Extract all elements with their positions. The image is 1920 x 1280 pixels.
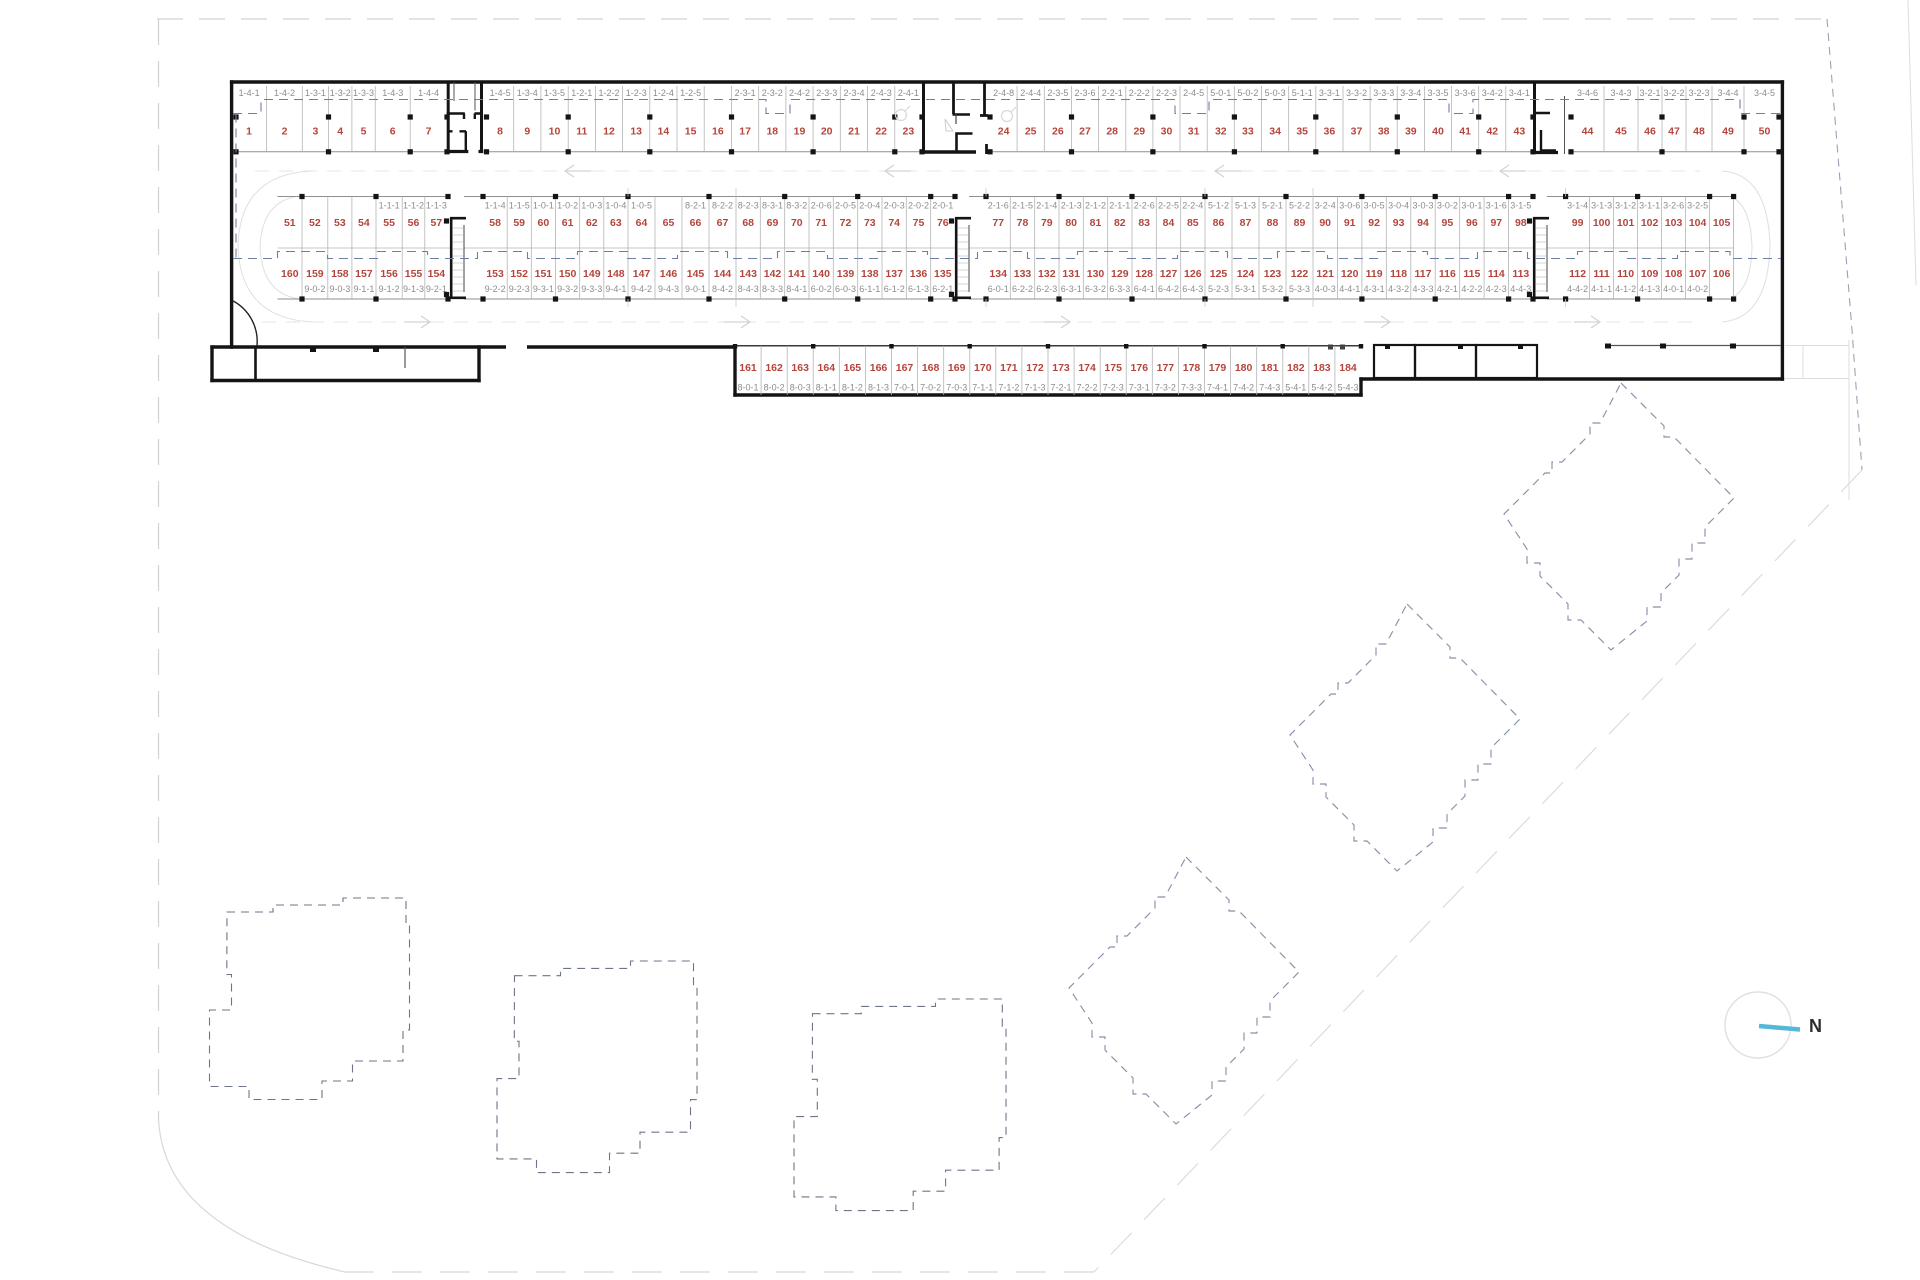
svg-text:2-1-2: 2-1-2 (1085, 201, 1106, 211)
svg-text:7-2-1: 7-2-1 (1050, 383, 1071, 393)
svg-text:2-3-6: 2-3-6 (1074, 88, 1095, 98)
svg-text:3-2-2: 3-2-2 (1663, 88, 1684, 98)
svg-text:70: 70 (791, 217, 803, 229)
svg-text:173: 173 (1052, 362, 1070, 374)
svg-text:4-2-1: 4-2-1 (1437, 284, 1458, 294)
svg-text:143: 143 (739, 268, 757, 280)
svg-text:5-0-3: 5-0-3 (1265, 88, 1286, 98)
svg-text:128: 128 (1135, 268, 1153, 280)
svg-text:139: 139 (837, 268, 855, 280)
svg-text:5-0-1: 5-0-1 (1210, 88, 1231, 98)
svg-text:116: 116 (1439, 268, 1456, 280)
svg-text:2-0-2: 2-0-2 (908, 201, 929, 211)
svg-text:109: 109 (1641, 268, 1659, 280)
svg-text:47: 47 (1668, 126, 1680, 138)
svg-text:5-1-2: 5-1-2 (1208, 201, 1229, 211)
svg-text:162: 162 (765, 362, 783, 374)
svg-text:3-1-6: 3-1-6 (1486, 201, 1507, 211)
svg-text:6-1-1: 6-1-1 (859, 284, 880, 294)
svg-text:42: 42 (1486, 126, 1498, 138)
svg-text:2-1-3: 2-1-3 (1061, 201, 1082, 211)
svg-text:57: 57 (431, 217, 443, 229)
svg-text:174: 174 (1078, 362, 1096, 374)
svg-text:9-2-1: 9-2-1 (426, 284, 447, 294)
svg-text:1-1-1: 1-1-1 (379, 201, 400, 211)
svg-text:3-1-2: 3-1-2 (1615, 201, 1636, 211)
svg-text:156: 156 (380, 268, 398, 280)
svg-text:144: 144 (714, 268, 732, 280)
svg-text:122: 122 (1291, 268, 1309, 280)
svg-text:99: 99 (1572, 217, 1584, 229)
svg-text:58: 58 (489, 217, 501, 229)
svg-text:177: 177 (1157, 362, 1175, 374)
svg-text:8-3-3: 8-3-3 (762, 284, 783, 294)
svg-text:3-2-4: 3-2-4 (1315, 201, 1336, 211)
svg-text:28: 28 (1106, 126, 1118, 138)
svg-text:2-3-4: 2-3-4 (843, 88, 864, 98)
svg-text:66: 66 (690, 217, 702, 229)
svg-text:103: 103 (1665, 217, 1683, 229)
svg-text:172: 172 (1026, 362, 1044, 374)
svg-text:184: 184 (1339, 362, 1357, 374)
svg-text:33: 33 (1242, 126, 1254, 138)
svg-text:3-3-3: 3-3-3 (1373, 88, 1394, 98)
svg-text:2-2-1: 2-2-1 (1102, 88, 1123, 98)
svg-text:2-2-5: 2-2-5 (1158, 201, 1179, 211)
svg-text:9-1-2: 9-1-2 (379, 284, 400, 294)
svg-text:8-2-1: 8-2-1 (685, 201, 706, 211)
svg-text:72: 72 (840, 217, 852, 229)
svg-text:2-2-2: 2-2-2 (1129, 88, 1150, 98)
svg-text:48: 48 (1693, 126, 1705, 138)
svg-text:1-0-5: 1-0-5 (631, 201, 652, 211)
svg-text:10: 10 (549, 126, 561, 138)
svg-text:1-4-4: 1-4-4 (418, 88, 439, 98)
svg-text:14: 14 (658, 126, 670, 138)
svg-text:159: 159 (306, 268, 324, 280)
svg-text:86: 86 (1213, 217, 1225, 229)
svg-text:51: 51 (284, 217, 296, 229)
svg-text:4-2-3: 4-2-3 (1486, 284, 1507, 294)
svg-text:157: 157 (355, 268, 373, 280)
svg-text:39: 39 (1405, 126, 1417, 138)
svg-text:1-2-1: 1-2-1 (571, 88, 592, 98)
svg-text:2-4-1: 2-4-1 (898, 88, 919, 98)
svg-text:3-2-3: 3-2-3 (1688, 88, 1709, 98)
svg-text:119: 119 (1366, 268, 1383, 280)
svg-text:6-4-1: 6-4-1 (1134, 284, 1155, 294)
svg-text:45: 45 (1615, 126, 1627, 138)
svg-text:125: 125 (1210, 268, 1228, 280)
svg-text:7: 7 (426, 126, 432, 138)
svg-text:160: 160 (281, 268, 299, 280)
svg-text:147: 147 (633, 268, 651, 280)
svg-text:7-0-3: 7-0-3 (946, 383, 967, 393)
svg-text:91: 91 (1344, 217, 1356, 229)
svg-text:75: 75 (913, 217, 925, 229)
svg-text:108: 108 (1665, 268, 1683, 280)
svg-text:106: 106 (1713, 268, 1731, 280)
svg-text:124: 124 (1237, 268, 1255, 280)
svg-text:27: 27 (1079, 126, 1091, 138)
svg-text:3-1-1: 3-1-1 (1639, 201, 1660, 211)
svg-text:113: 113 (1512, 268, 1529, 280)
svg-text:126: 126 (1184, 268, 1202, 280)
svg-text:32: 32 (1215, 126, 1227, 138)
svg-text:4: 4 (337, 126, 343, 138)
svg-text:56: 56 (408, 217, 420, 229)
svg-text:166: 166 (870, 362, 888, 374)
svg-text:9-4-1: 9-4-1 (605, 284, 626, 294)
svg-text:23: 23 (903, 126, 915, 138)
svg-text:21: 21 (848, 126, 860, 138)
svg-text:140: 140 (812, 268, 830, 280)
svg-text:4-1-3: 4-1-3 (1639, 284, 1660, 294)
svg-text:5-2-3: 5-2-3 (1208, 284, 1229, 294)
svg-text:8-4-3: 8-4-3 (738, 284, 759, 294)
svg-text:9-3-3: 9-3-3 (581, 284, 602, 294)
svg-text:111: 111 (1593, 268, 1610, 280)
svg-text:148: 148 (607, 268, 625, 280)
svg-text:17: 17 (739, 126, 751, 138)
svg-text:4-3-2: 4-3-2 (1388, 284, 1409, 294)
svg-text:2-1-4: 2-1-4 (1036, 201, 1057, 211)
svg-text:102: 102 (1641, 217, 1659, 229)
svg-text:3-4-2: 3-4-2 (1482, 88, 1503, 98)
svg-text:2: 2 (282, 126, 288, 138)
svg-text:1-1-5: 1-1-5 (509, 201, 530, 211)
svg-text:69: 69 (767, 217, 779, 229)
svg-text:79: 79 (1041, 217, 1053, 229)
svg-text:3-0-3: 3-0-3 (1412, 201, 1433, 211)
svg-text:19: 19 (794, 126, 806, 138)
svg-text:3-1-5: 3-1-5 (1510, 201, 1531, 211)
svg-text:2-0-6: 2-0-6 (811, 201, 832, 211)
svg-text:6: 6 (390, 126, 396, 138)
svg-text:N: N (1809, 1016, 1822, 1036)
svg-text:2-0-4: 2-0-4 (859, 201, 880, 211)
svg-text:141: 141 (788, 268, 806, 280)
svg-text:53: 53 (334, 217, 346, 229)
svg-text:170: 170 (974, 362, 992, 374)
svg-text:8-0-2: 8-0-2 (764, 383, 785, 393)
svg-text:149: 149 (583, 268, 601, 280)
svg-text:6-3-2: 6-3-2 (1085, 284, 1106, 294)
svg-text:114: 114 (1488, 268, 1505, 280)
svg-text:6-3-3: 6-3-3 (1109, 284, 1130, 294)
svg-text:89: 89 (1294, 217, 1306, 229)
svg-text:4-0-3: 4-0-3 (1315, 284, 1336, 294)
svg-text:4-3-3: 4-3-3 (1412, 284, 1433, 294)
svg-text:2-0-3: 2-0-3 (884, 201, 905, 211)
svg-text:3-4-4: 3-4-4 (1717, 88, 1738, 98)
svg-text:130: 130 (1087, 268, 1105, 280)
svg-text:3-3-1: 3-3-1 (1319, 88, 1340, 98)
svg-text:40: 40 (1432, 126, 1444, 138)
svg-text:7-2-3: 7-2-3 (1103, 383, 1124, 393)
svg-text:2-3-3: 2-3-3 (816, 88, 837, 98)
svg-text:3-3-4: 3-3-4 (1400, 88, 1421, 98)
svg-text:2-4-5: 2-4-5 (1183, 88, 1204, 98)
svg-text:1: 1 (246, 126, 252, 138)
svg-text:88: 88 (1267, 217, 1279, 229)
svg-text:142: 142 (764, 268, 782, 280)
svg-text:71: 71 (815, 217, 827, 229)
svg-text:6-4-3: 6-4-3 (1182, 284, 1203, 294)
svg-text:8-3-2: 8-3-2 (786, 201, 807, 211)
svg-text:67: 67 (717, 217, 729, 229)
svg-text:7-1-3: 7-1-3 (1024, 383, 1045, 393)
svg-text:7-1-2: 7-1-2 (998, 383, 1019, 393)
svg-text:9-4-3: 9-4-3 (658, 284, 679, 294)
svg-text:183: 183 (1313, 362, 1331, 374)
svg-text:3-3-6: 3-3-6 (1455, 88, 1476, 98)
svg-text:4-1-1: 4-1-1 (1591, 284, 1612, 294)
svg-text:5-3-2: 5-3-2 (1262, 284, 1283, 294)
svg-text:136: 136 (910, 268, 928, 280)
svg-text:1-2-5: 1-2-5 (680, 88, 701, 98)
svg-text:100: 100 (1593, 217, 1611, 229)
svg-text:85: 85 (1187, 217, 1199, 229)
svg-text:4-1-2: 4-1-2 (1615, 284, 1636, 294)
svg-text:171: 171 (1000, 362, 1018, 374)
svg-text:7-0-2: 7-0-2 (920, 383, 941, 393)
svg-text:107: 107 (1689, 268, 1707, 280)
svg-text:8-1-3: 8-1-3 (868, 383, 889, 393)
svg-text:161: 161 (739, 362, 757, 374)
svg-text:1-3-2: 1-3-2 (330, 88, 351, 98)
svg-text:5: 5 (361, 126, 367, 138)
svg-text:8-0-3: 8-0-3 (790, 383, 811, 393)
svg-text:8-2-3: 8-2-3 (738, 201, 759, 211)
svg-text:175: 175 (1104, 362, 1122, 374)
svg-text:9-2-3: 9-2-3 (509, 284, 530, 294)
svg-text:8-1-1: 8-1-1 (816, 383, 837, 393)
svg-text:6-2-3: 6-2-3 (1036, 284, 1057, 294)
svg-text:1-0-2: 1-0-2 (557, 201, 578, 211)
svg-text:137: 137 (885, 268, 903, 280)
svg-text:36: 36 (1324, 126, 1336, 138)
svg-text:29: 29 (1133, 126, 1145, 138)
svg-text:9-1-3: 9-1-3 (403, 284, 424, 294)
svg-text:87: 87 (1240, 217, 1252, 229)
svg-text:155: 155 (405, 268, 423, 280)
svg-text:3: 3 (312, 126, 318, 138)
svg-text:9-3-1: 9-3-1 (533, 284, 554, 294)
svg-text:1-0-3: 1-0-3 (581, 201, 602, 211)
svg-text:1-4-3: 1-4-3 (382, 88, 403, 98)
svg-text:1-2-2: 1-2-2 (598, 88, 619, 98)
svg-text:5-1-3: 5-1-3 (1235, 201, 1256, 211)
svg-text:9-1-1: 9-1-1 (353, 284, 374, 294)
svg-text:1-3-1: 1-3-1 (305, 88, 326, 98)
svg-text:68: 68 (742, 217, 754, 229)
svg-text:150: 150 (559, 268, 577, 280)
svg-text:95: 95 (1442, 217, 1454, 229)
svg-text:3-4-1: 3-4-1 (1509, 88, 1530, 98)
svg-text:9-0-3: 9-0-3 (329, 284, 350, 294)
svg-text:4-0-2: 4-0-2 (1687, 284, 1708, 294)
svg-text:135: 135 (934, 268, 952, 280)
svg-text:127: 127 (1160, 268, 1178, 280)
svg-text:145: 145 (687, 268, 705, 280)
svg-text:81: 81 (1090, 217, 1102, 229)
svg-text:2-2-4: 2-2-4 (1182, 201, 1203, 211)
svg-text:120: 120 (1341, 268, 1359, 280)
svg-text:13: 13 (630, 126, 642, 138)
svg-text:11: 11 (576, 126, 587, 138)
svg-text:15: 15 (685, 126, 697, 138)
svg-text:5-4-1: 5-4-1 (1285, 383, 1306, 393)
svg-text:5-0-2: 5-0-2 (1237, 88, 1258, 98)
svg-text:90: 90 (1319, 217, 1331, 229)
svg-text:1-0-4: 1-0-4 (605, 201, 626, 211)
svg-text:179: 179 (1209, 362, 1227, 374)
svg-text:9-3-2: 9-3-2 (557, 284, 578, 294)
svg-text:176: 176 (1131, 362, 1149, 374)
svg-text:37: 37 (1351, 126, 1363, 138)
svg-text:7-4-3: 7-4-3 (1259, 383, 1280, 393)
svg-text:6-0-1: 6-0-1 (988, 284, 1009, 294)
svg-text:61: 61 (562, 217, 574, 229)
svg-text:112: 112 (1569, 268, 1586, 280)
svg-text:2-4-3: 2-4-3 (871, 88, 892, 98)
svg-text:2-0-1: 2-0-1 (932, 201, 953, 211)
svg-text:178: 178 (1183, 362, 1201, 374)
svg-text:5-2-2: 5-2-2 (1289, 201, 1310, 211)
svg-text:7-0-1: 7-0-1 (894, 383, 915, 393)
svg-text:4-3-1: 4-3-1 (1364, 284, 1385, 294)
svg-text:5-4-3: 5-4-3 (1337, 383, 1358, 393)
svg-text:169: 169 (948, 362, 966, 374)
svg-text:3-3-5: 3-3-5 (1427, 88, 1448, 98)
svg-text:8-2-2: 8-2-2 (712, 201, 733, 211)
svg-text:52: 52 (309, 217, 321, 229)
svg-text:76: 76 (937, 217, 949, 229)
svg-text:134: 134 (989, 268, 1007, 280)
svg-text:104: 104 (1689, 217, 1707, 229)
svg-text:6-3-1: 6-3-1 (1061, 284, 1082, 294)
svg-text:1-2-3: 1-2-3 (626, 88, 647, 98)
svg-text:167: 167 (896, 362, 914, 374)
svg-text:6-1-3: 6-1-3 (908, 284, 929, 294)
svg-text:3-4-6: 3-4-6 (1577, 88, 1598, 98)
svg-text:1-3-5: 1-3-5 (544, 88, 565, 98)
svg-text:117: 117 (1415, 268, 1432, 280)
svg-text:1-1-4: 1-1-4 (485, 201, 506, 211)
svg-text:1-3-4: 1-3-4 (517, 88, 538, 98)
svg-text:54: 54 (358, 217, 370, 229)
svg-text:1-1-2: 1-1-2 (403, 201, 424, 211)
svg-text:49: 49 (1722, 126, 1734, 138)
svg-text:3-0-6: 3-0-6 (1339, 201, 1360, 211)
svg-text:6-0-2: 6-0-2 (811, 284, 832, 294)
svg-text:4-2-2: 4-2-2 (1461, 284, 1482, 294)
svg-text:164: 164 (818, 362, 836, 374)
svg-text:2-4-8: 2-4-8 (993, 88, 1014, 98)
svg-text:118: 118 (1390, 268, 1407, 280)
svg-text:6-0-3: 6-0-3 (835, 284, 856, 294)
svg-text:133: 133 (1014, 268, 1032, 280)
svg-text:24: 24 (998, 126, 1010, 138)
svg-text:8-0-1: 8-0-1 (737, 383, 758, 393)
svg-text:4-4-2: 4-4-2 (1567, 284, 1588, 294)
svg-text:168: 168 (922, 362, 940, 374)
svg-text:110: 110 (1617, 268, 1634, 280)
svg-text:6-4-2: 6-4-2 (1158, 284, 1179, 294)
svg-text:44: 44 (1582, 126, 1594, 138)
svg-text:7-4-1: 7-4-1 (1207, 383, 1228, 393)
svg-text:3-3-2: 3-3-2 (1346, 88, 1367, 98)
svg-text:73: 73 (864, 217, 876, 229)
svg-text:165: 165 (844, 362, 862, 374)
svg-text:94: 94 (1417, 217, 1429, 229)
svg-text:1-3-3: 1-3-3 (353, 88, 374, 98)
svg-text:105: 105 (1713, 217, 1731, 229)
svg-text:2-1-5: 2-1-5 (1012, 201, 1033, 211)
svg-text:93: 93 (1393, 217, 1405, 229)
svg-text:3-0-2: 3-0-2 (1437, 201, 1458, 211)
svg-text:6-1-2: 6-1-2 (884, 284, 905, 294)
svg-text:35: 35 (1296, 126, 1308, 138)
svg-text:59: 59 (513, 217, 525, 229)
svg-text:182: 182 (1287, 362, 1305, 374)
svg-text:7-3-2: 7-3-2 (1155, 383, 1176, 393)
svg-text:8-4-2: 8-4-2 (712, 284, 733, 294)
svg-text:152: 152 (510, 268, 528, 280)
svg-text:16: 16 (712, 126, 724, 138)
svg-text:62: 62 (586, 217, 598, 229)
svg-text:12: 12 (603, 126, 615, 138)
svg-text:101: 101 (1617, 217, 1635, 229)
svg-text:34: 34 (1269, 126, 1281, 138)
svg-text:8-1-2: 8-1-2 (842, 383, 863, 393)
svg-text:121: 121 (1316, 268, 1334, 280)
svg-text:2-3-2: 2-3-2 (762, 88, 783, 98)
svg-text:3-2-1: 3-2-1 (1639, 88, 1660, 98)
svg-text:5-4-2: 5-4-2 (1311, 383, 1332, 393)
svg-text:7-4-2: 7-4-2 (1233, 383, 1254, 393)
svg-text:5-2-1: 5-2-1 (1262, 201, 1283, 211)
svg-text:31: 31 (1188, 126, 1200, 138)
svg-text:151: 151 (535, 268, 553, 280)
svg-text:163: 163 (791, 362, 809, 374)
svg-text:26: 26 (1052, 126, 1064, 138)
svg-text:18: 18 (766, 126, 778, 138)
svg-text:92: 92 (1368, 217, 1380, 229)
svg-text:1-4-5: 1-4-5 (490, 88, 511, 98)
svg-text:9-4-2: 9-4-2 (631, 284, 652, 294)
svg-text:2-4-2: 2-4-2 (789, 88, 810, 98)
svg-text:3-1-3: 3-1-3 (1591, 201, 1612, 211)
svg-text:60: 60 (538, 217, 550, 229)
svg-text:3-2-5: 3-2-5 (1687, 201, 1708, 211)
svg-text:82: 82 (1114, 217, 1126, 229)
svg-text:80: 80 (1065, 217, 1077, 229)
svg-text:7-1-1: 7-1-1 (972, 383, 993, 393)
svg-text:1-4-2: 1-4-2 (274, 88, 295, 98)
svg-text:4-0-1: 4-0-1 (1663, 284, 1684, 294)
svg-text:7-3-3: 7-3-3 (1181, 383, 1202, 393)
svg-text:2-2-3: 2-2-3 (1156, 88, 1177, 98)
svg-text:8-3-1: 8-3-1 (762, 201, 783, 211)
svg-text:2-4-4: 2-4-4 (1020, 88, 1041, 98)
svg-text:131: 131 (1062, 268, 1080, 280)
svg-text:3-0-1: 3-0-1 (1461, 201, 1482, 211)
svg-text:1-4-1: 1-4-1 (239, 88, 260, 98)
svg-text:1-0-1: 1-0-1 (533, 201, 554, 211)
svg-text:78: 78 (1017, 217, 1029, 229)
